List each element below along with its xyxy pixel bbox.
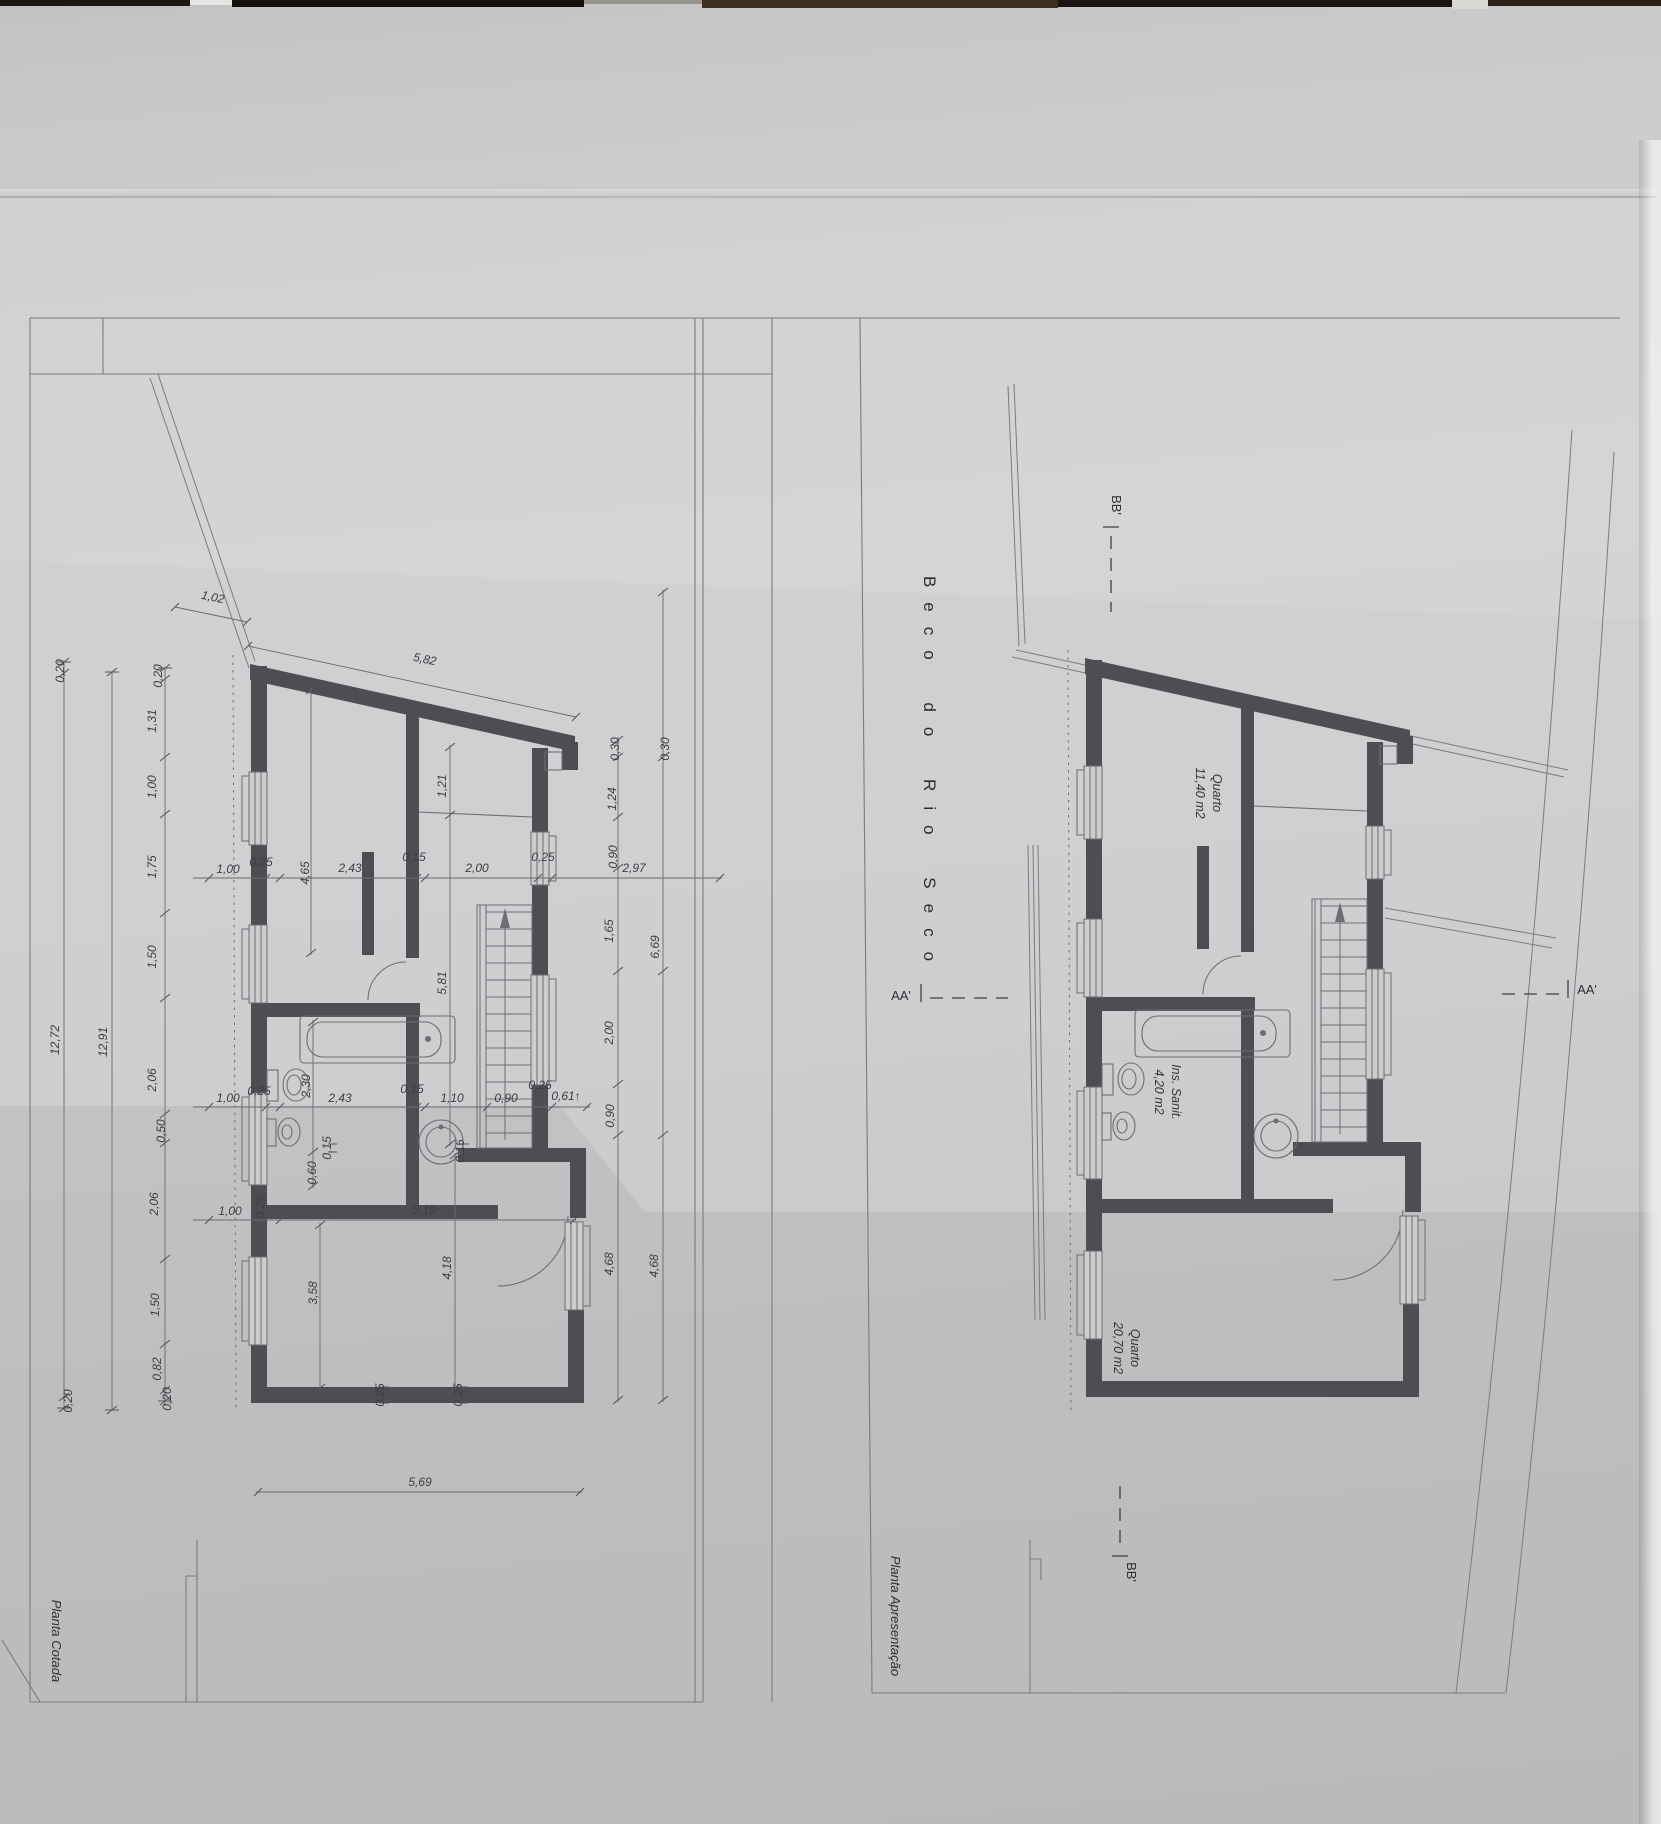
dimension-value: 0,20 xyxy=(53,659,67,683)
room-quarto2-area: 20,70 m2 xyxy=(1111,1321,1125,1374)
dimension-value: 0,90 xyxy=(603,1104,617,1128)
dimension-value: 0,90 xyxy=(606,845,620,869)
room-quarto2-name: Quarto xyxy=(1128,1329,1142,1367)
alignment-dotted-lines xyxy=(233,650,1071,1412)
dimension-value: 0,25 xyxy=(373,1383,387,1407)
dimension-value: 0,30 xyxy=(658,737,672,761)
dimension-value: 5,82 xyxy=(412,650,438,669)
dimension-value: 2,00 xyxy=(602,1021,616,1046)
dimension-value: 0,30 xyxy=(608,737,622,761)
dimension-value: 0,25 xyxy=(451,1383,465,1407)
dimension-value: 0,25 xyxy=(531,850,555,864)
dimension-value: 5,69 xyxy=(408,1475,432,1489)
dimension-value: 1,75 xyxy=(145,855,159,879)
dimension-value: 0,25 xyxy=(528,1078,552,1092)
dimension-value: 1,31 xyxy=(145,709,159,732)
dimension-value: 0,15 xyxy=(400,1082,424,1096)
dimension-value: 0,60 xyxy=(305,1161,319,1185)
dimension-value: 4,18 xyxy=(440,1256,454,1280)
dimension-value: 0,61↑ xyxy=(551,1089,580,1103)
street-name-label: Beco do Rio Seco xyxy=(920,576,939,976)
dimension-value: 0,50 xyxy=(154,1119,168,1143)
dimension-value: 3,58 xyxy=(306,1281,320,1305)
dimension-value: 2,43 xyxy=(327,1091,352,1105)
street-curve xyxy=(1506,452,1614,1693)
dimension-value: 5,81 xyxy=(435,971,449,994)
room-sanit-area: 4,20 m2 xyxy=(1152,1069,1166,1114)
dimension-value: 1,65 xyxy=(602,919,616,943)
dimension-value: 1,50 xyxy=(148,1293,162,1317)
room-sanit-name: Ins. Sanit. xyxy=(1169,1064,1183,1120)
dimension-value: 12,91 xyxy=(96,1027,110,1057)
dimension-value: 0,25 xyxy=(253,1195,267,1219)
dimension-value: 1,21 xyxy=(435,774,449,797)
dimension-value: 1,00 xyxy=(218,1204,242,1218)
dimension-value: 1,50 xyxy=(145,945,159,969)
dimension-value: 0,25 xyxy=(247,1084,271,1098)
dimension-value: 0,20 xyxy=(61,1389,75,1413)
dimension-value: 0,15 xyxy=(453,1139,467,1163)
dimension-value: 1,10 xyxy=(440,1091,464,1105)
dimension-value: 0,20 xyxy=(151,664,165,688)
dimension-value: 12,72 xyxy=(48,1025,62,1055)
dimension-lines xyxy=(64,590,722,1492)
dimension-value: 2,30 xyxy=(299,1074,313,1099)
dimension-value: 0,20 xyxy=(160,1387,174,1411)
plan-cotada-title: Planta Cotada xyxy=(49,1600,64,1682)
dimension-value: 0,15 xyxy=(320,1136,334,1160)
dimension-value: 2,00 xyxy=(464,861,489,875)
dimension-value: 2,06 xyxy=(145,1068,159,1093)
dimension-value: 1,00 xyxy=(216,862,240,876)
section-bb-top-label: BB' xyxy=(1109,495,1124,515)
dimension-value: 0,25 xyxy=(249,855,273,869)
section-aa-right-label: AA' xyxy=(1577,982,1597,997)
room-quarto1-name: Quarto xyxy=(1210,774,1224,812)
room-quarto1-area: 11,40 m2 xyxy=(1193,767,1207,818)
dimension-value: 4,68 xyxy=(647,1254,661,1278)
planta-apresentacao-drawing xyxy=(1077,658,1425,1397)
dimension-value: 2,97 xyxy=(621,861,647,875)
dimension-value: 4,68 xyxy=(602,1252,616,1276)
dimension-value: 6,69 xyxy=(648,935,662,959)
dimension-value: 0,15 xyxy=(402,850,426,864)
photographed-floorplan-sheet: 1,025,820,201,311,001,751,502,060,502,06… xyxy=(0,0,1661,1824)
dimension-value: 2,06 xyxy=(147,1192,161,1217)
street-curve xyxy=(1456,430,1572,1693)
dimension-value: 1,24 xyxy=(605,787,619,811)
dimension-value: 0,90 xyxy=(494,1091,518,1105)
section-aa-left-label: AA' xyxy=(891,988,911,1003)
dimension-value: 5,19 xyxy=(412,1203,436,1217)
planta-cotada-drawing xyxy=(242,664,590,1403)
dimension-value: 2,43 xyxy=(337,861,362,875)
dimension-value: 1,00 xyxy=(145,775,159,799)
dimension-value: 4,65 xyxy=(298,861,312,885)
boundary-lines xyxy=(150,374,1614,1693)
section-bb-bottom-label: BB' xyxy=(1124,1562,1139,1582)
dimension-value: 1,00 xyxy=(216,1091,240,1105)
plan-apresentacao-title: Planta Apresentação xyxy=(888,1556,903,1676)
dimension-value: 0,82 xyxy=(150,1357,164,1381)
architectural-drawing: 1,025,820,201,311,001,751,502,060,502,06… xyxy=(0,0,1661,1824)
